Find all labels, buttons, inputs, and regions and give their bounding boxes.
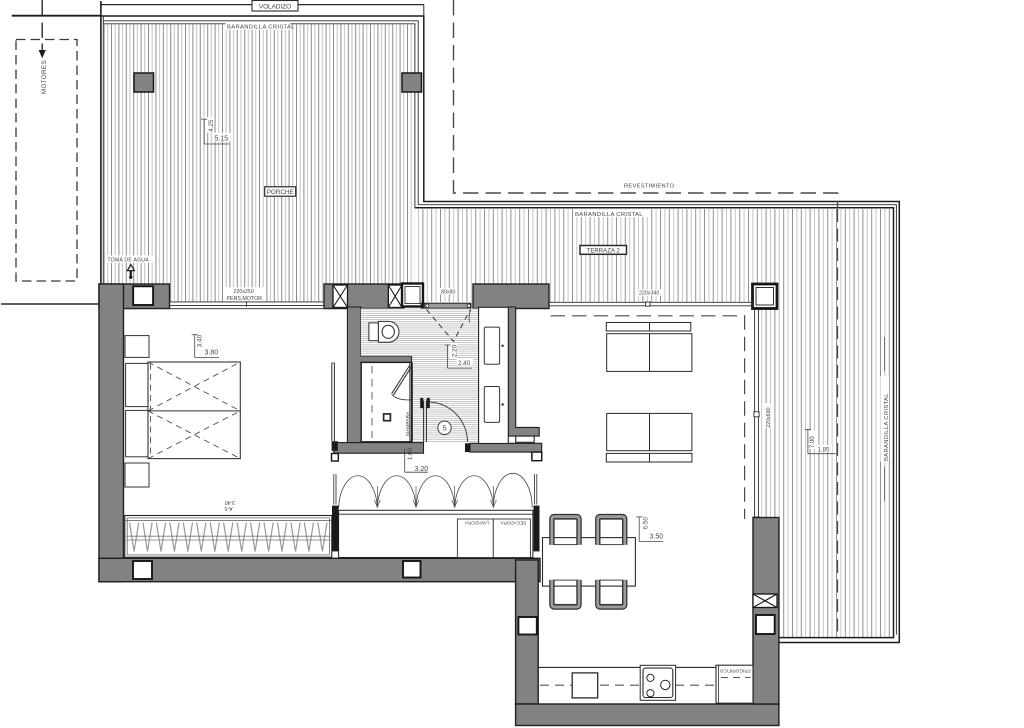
svg-text:TOMA DE AGUA: TOMA DE AGUA [107,257,149,263]
svg-text:3.50: 3.50 [650,534,664,541]
svg-text:REVESTIMIENTO: REVESTIMIENTO [624,183,675,189]
svg-text:220x690: 220x690 [766,407,772,427]
svg-text:6.50: 6.50 [642,517,649,530]
svg-text:MOTORES: MOTORES [41,60,48,94]
svg-text:LAVADORA: LAVADORA [464,521,490,526]
svg-text:PERS.MOTOR: PERS.MOTOR [227,296,263,302]
svg-text:3.40: 3.40 [196,334,203,347]
svg-text:7.00: 7.00 [809,436,816,449]
svg-text:3.40: 3.40 [225,499,235,505]
svg-text:2.20: 2.20 [451,344,458,357]
svg-text:5: 5 [442,424,446,433]
svg-text:220x340: 220x340 [639,291,659,297]
svg-text:BARANDILLA CRISTAL: BARANDILLA CRISTAL [575,212,643,218]
svg-text:MAMPARA: MAMPARA [405,411,411,436]
svg-text:PORCHE: PORCHE [267,189,294,196]
svg-text:1.85: 1.85 [818,446,831,453]
svg-text:3.80: 3.80 [205,350,219,357]
svg-text:220x250: 220x250 [234,289,254,295]
svg-text:2.40: 2.40 [458,360,471,367]
svg-text:3.20: 3.20 [415,466,429,473]
svg-text:5.15: 5.15 [215,136,229,143]
svg-text:BARANDILLA CRISTAL: BARANDILLA CRISTAL [884,393,890,461]
svg-text:VOLADIZO: VOLADIZO [259,4,291,11]
svg-text:FRIGORIFICO: FRIGORIFICO [719,669,750,674]
svg-text:BARANDILLA CRISTAL: BARANDILLA CRISTAL [227,25,295,31]
svg-text:4.25: 4.25 [208,119,215,132]
svg-text:80x80: 80x80 [441,289,455,295]
svg-text:SECADORA: SECADORA [499,521,526,526]
svg-text:A-5: A-5 [224,505,232,511]
svg-text:TERRAZA 2: TERRAZA 2 [587,247,621,254]
svg-text:1.00: 1.00 [407,447,414,460]
